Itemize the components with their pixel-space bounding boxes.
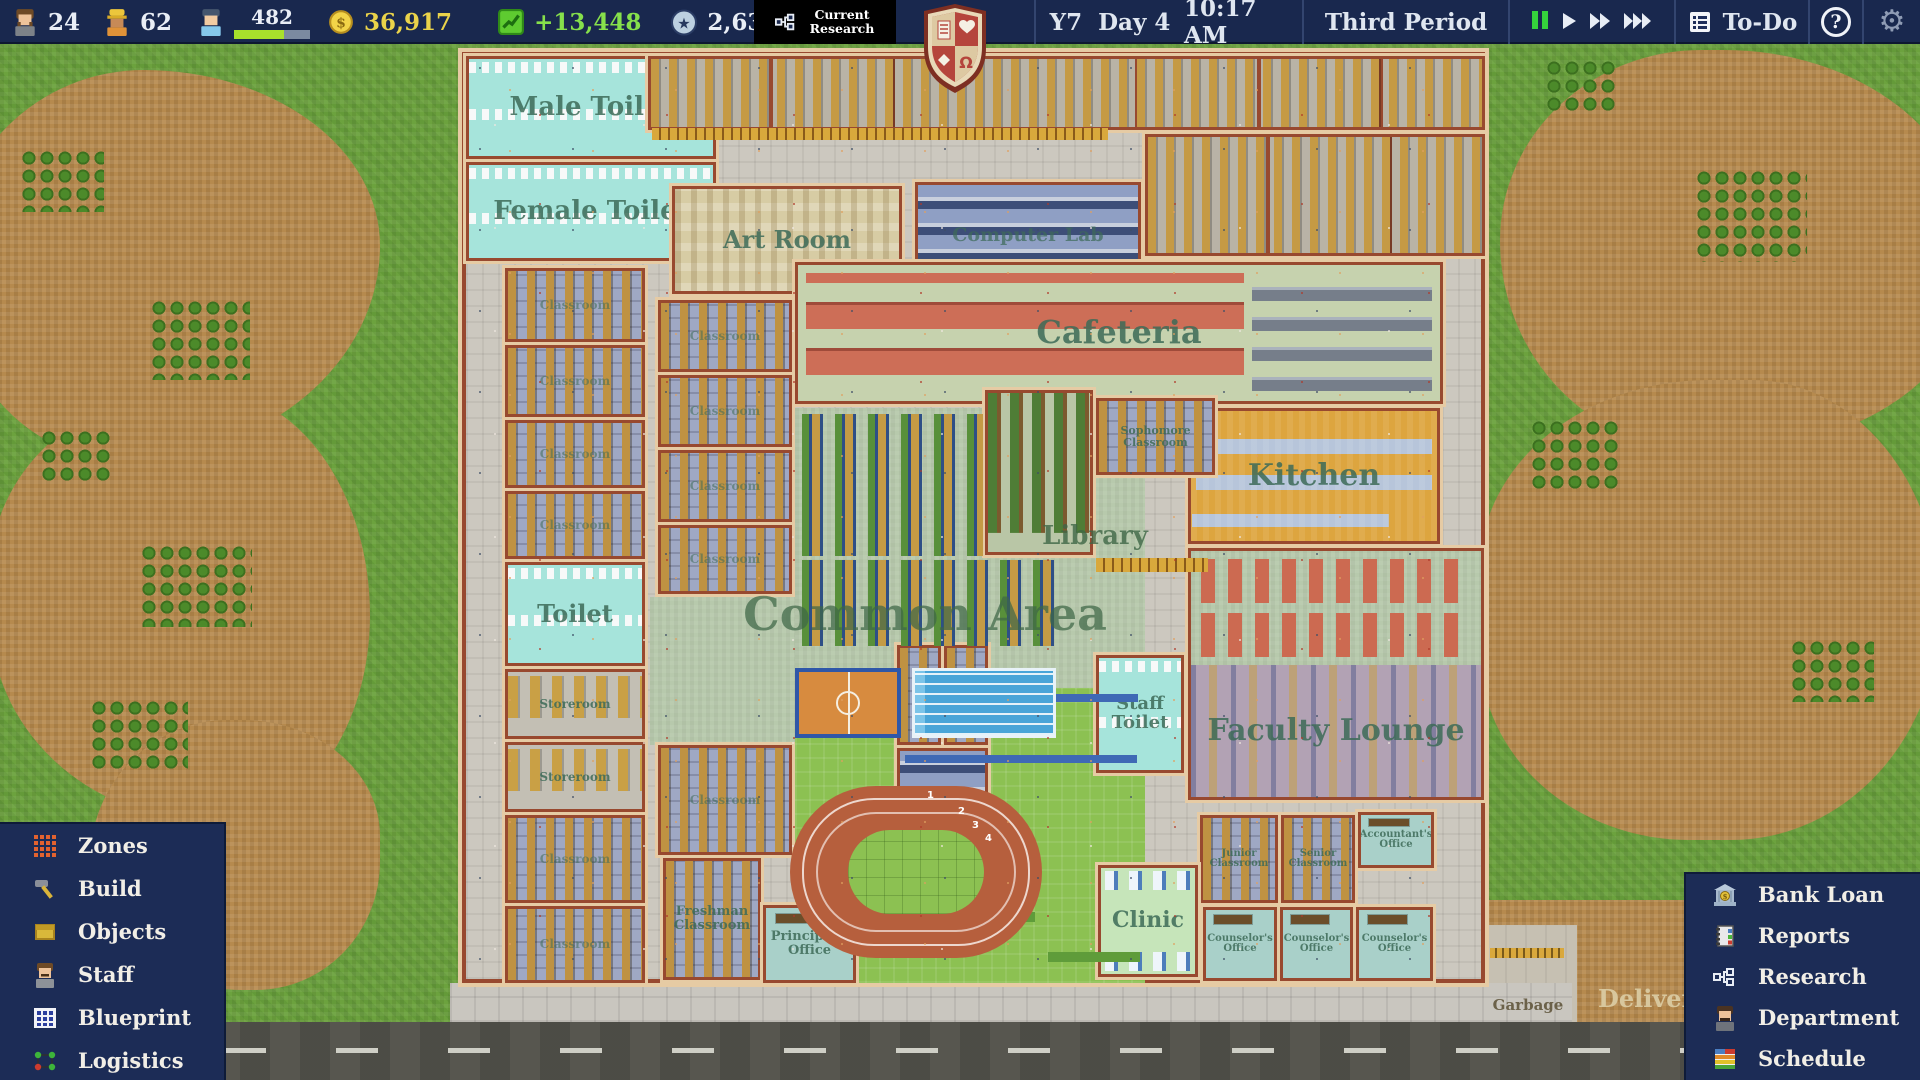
menu-item-label: Zones — [78, 833, 148, 858]
tree-cluster — [1790, 640, 1874, 702]
room-classroom[interactable]: Classroom — [658, 450, 792, 522]
room-label: Classroom — [508, 423, 642, 485]
room-label: Storeroom — [508, 745, 642, 809]
room-accountants-office[interactable]: Accountant's Office — [1358, 812, 1434, 868]
student-count-value: 482 — [251, 5, 293, 29]
profit-chart-icon — [498, 9, 524, 35]
menu-item-blueprint[interactable]: Blueprint — [0, 996, 224, 1039]
swimming-pool[interactable] — [912, 668, 1056, 738]
prestige-star-icon: ★ — [671, 9, 697, 35]
worker-count-value: 62 — [140, 9, 172, 36]
room-label: Toilet — [508, 565, 642, 663]
tree-cluster — [40, 430, 110, 482]
reports-notebook-icon — [1712, 923, 1738, 949]
worker-icon — [104, 9, 130, 35]
room-classroom-band[interactable] — [1145, 134, 1485, 256]
svg-text:$: $ — [336, 15, 346, 31]
money-value: 36,917 — [364, 9, 452, 36]
money-stat: $ 36,917 — [328, 9, 452, 36]
room-label: Classroom — [661, 528, 789, 591]
room-classroom[interactable]: Classroom — [505, 420, 645, 488]
room-label: Counselor's Office — [1283, 910, 1350, 978]
day-value: Day 4 — [1098, 9, 1170, 36]
room-label: Classroom — [508, 818, 642, 900]
time-value: 10:17 AM — [1184, 0, 1302, 49]
teacher-icon — [12, 9, 38, 35]
sofa-row[interactable] — [1201, 613, 1471, 657]
room-label: Sophomore Classroom — [1099, 401, 1212, 472]
help-button[interactable]: ? — [1808, 0, 1862, 44]
management-menu: $ Bank Loan Reports Research Department … — [1684, 872, 1920, 1080]
room-kitchen[interactable]: Kitchen — [1188, 408, 1440, 544]
menu-item-label: Bank Loan — [1758, 882, 1884, 907]
student-capacity-fill — [234, 30, 284, 39]
sidewalk — [450, 983, 1572, 1022]
lockers[interactable] — [652, 128, 1108, 140]
menu-item-zones[interactable]: Zones — [0, 824, 224, 867]
department-person-icon — [1712, 1005, 1738, 1031]
tree-cluster — [150, 300, 250, 380]
svg-text:★: ★ — [678, 14, 691, 32]
year-value: Y7 — [1050, 9, 1082, 36]
room-classroom[interactable]: Classroom — [658, 745, 792, 855]
menu-item-label: Logistics — [78, 1048, 184, 1073]
svg-text:$: $ — [1723, 892, 1728, 901]
room-sophomore-classroom[interactable]: Sophomore Classroom — [1096, 398, 1215, 475]
staff-person-icon — [32, 962, 58, 988]
date-display: Y7 Day 4 — [1034, 0, 1184, 44]
sofa-row[interactable] — [1201, 559, 1471, 603]
menu-item-label: Research — [1758, 964, 1867, 989]
room-label: Storeroom — [508, 672, 642, 736]
room-counselors-office[interactable]: Counselor's Office — [1280, 907, 1353, 981]
menu-item-bank-loan[interactable]: $ Bank Loan — [1686, 874, 1920, 915]
blueprint-icon — [32, 1005, 58, 1031]
room-label: Classroom — [508, 271, 642, 339]
room-counselors-office[interactable]: Counselor's Office — [1356, 907, 1433, 981]
serving-counter[interactable] — [1252, 275, 1432, 391]
todo-label: To-Do — [1723, 9, 1798, 36]
tree-cluster — [1530, 420, 1622, 490]
student-icon — [198, 9, 224, 35]
play-button[interactable] — [1561, 9, 1577, 36]
logistics-icon — [32, 1048, 58, 1074]
fast-forward-button[interactable] — [1589, 9, 1611, 36]
build-menu: Zones Build Objects Staff Blueprint Logi — [0, 822, 226, 1080]
schedule-table-icon — [1712, 1046, 1738, 1072]
tree-cluster — [140, 545, 252, 627]
room-label: Junior Classroom — [1203, 818, 1275, 900]
lane-number: 1 — [927, 790, 934, 801]
menu-item-label: Objects — [78, 919, 166, 944]
common-area-floor[interactable] — [650, 597, 795, 745]
room-label: Counselor's Office — [1359, 910, 1430, 978]
room-storeroom[interactable]: Storeroom — [505, 669, 645, 739]
worker-count: 62 — [104, 9, 172, 36]
lockers[interactable] — [1096, 558, 1208, 572]
room-freshman-classroom[interactable]: Freshman Classroom — [663, 858, 761, 980]
menu-item-label: Department — [1758, 1005, 1899, 1030]
room-classroom[interactable]: Classroom — [658, 300, 792, 372]
room-label: Classroom — [508, 348, 642, 414]
menu-item-label: Blueprint — [78, 1005, 191, 1030]
speed-controls — [1508, 0, 1674, 44]
room-label: Counselor's Office — [1206, 910, 1274, 978]
lane-number: 3 — [972, 820, 979, 831]
cafeteria-tables[interactable] — [806, 273, 1244, 375]
room-senior-classroom[interactable]: Senior Classroom — [1281, 815, 1355, 903]
menu-item-schedule[interactable]: Schedule — [1686, 1038, 1920, 1079]
room-label: Classroom — [661, 453, 789, 519]
bench-row[interactable] — [905, 755, 1137, 763]
running-track[interactable]: 1 2 3 4 — [790, 786, 1042, 958]
game-screen: Male Toilet Female Toilet Art Room Compu… — [0, 0, 1920, 1080]
lane-number: 2 — [958, 806, 965, 817]
period-display: Third Period — [1302, 0, 1508, 44]
menu-item-label: Build — [78, 876, 142, 901]
profit-value: +13,448 — [534, 9, 641, 36]
room-cafeteria[interactable]: Cafeteria — [795, 262, 1443, 404]
tree-cluster — [20, 150, 104, 212]
top-bar-right: Y7 Day 4 10:17 AM Third Period — [1034, 0, 1920, 44]
menu-item-objects[interactable]: Objects — [0, 910, 224, 953]
faculty-lounge-tables[interactable] — [1191, 665, 1481, 797]
picnic-tables[interactable] — [802, 560, 1062, 646]
menu-item-logistics[interactable]: Logistics — [0, 1039, 224, 1080]
tree-cluster — [1695, 170, 1807, 262]
settings-button[interactable]: ⚙ — [1862, 0, 1920, 44]
road — [0, 1022, 1920, 1080]
basketball-court[interactable] — [795, 668, 901, 738]
room-label: Classroom — [508, 909, 642, 980]
room-label: Kitchen — [1191, 411, 1437, 541]
room-label: Senior Classroom — [1284, 818, 1352, 900]
room-label: Freshman Classroom — [666, 861, 758, 977]
bank-icon: $ — [1712, 882, 1738, 908]
road-markings — [0, 1048, 1920, 1053]
objects-box-icon — [32, 919, 58, 945]
menu-item-build[interactable]: Build — [0, 867, 224, 910]
room-classroom[interactable]: Classroom — [505, 815, 645, 903]
track-infield — [848, 830, 984, 914]
tree-cluster — [1545, 60, 1615, 112]
hammer-icon — [32, 876, 58, 902]
todo-list-icon — [1687, 9, 1713, 35]
student-count: 482 — [198, 5, 310, 39]
room-classroom[interactable]: Classroom — [658, 375, 792, 447]
svg-text:Ω: Ω — [959, 53, 973, 72]
room-toilet[interactable]: Toilet — [505, 562, 645, 666]
picnic-tables[interactable] — [802, 414, 983, 556]
room-library[interactable] — [985, 390, 1093, 555]
gear-icon: ⚙ — [1879, 7, 1906, 37]
menu-item-label: Schedule — [1758, 1046, 1866, 1071]
stats-group: 24 62 482 $ 36,917 — [12, 0, 779, 44]
menu-item-label: Staff — [78, 962, 134, 987]
tree-cluster — [90, 700, 188, 770]
menu-item-research[interactable]: Research — [1686, 956, 1920, 997]
student-capacity-bar — [234, 30, 310, 39]
room-classroom[interactable]: Classroom — [658, 525, 792, 594]
pause-button[interactable] — [1531, 9, 1549, 36]
lane-number: 4 — [985, 833, 992, 844]
room-label: Classroom — [661, 748, 789, 852]
room-classroom[interactable]: Classroom — [505, 345, 645, 417]
school-crest: Ω — [919, 2, 991, 94]
menu-item-label: Reports — [1758, 923, 1850, 948]
room-label: Classroom — [661, 303, 789, 369]
teacher-count: 24 — [12, 9, 80, 36]
research-flowchart-icon — [1712, 964, 1738, 990]
room-classroom[interactable]: Classroom — [505, 268, 645, 342]
room-classroom[interactable]: Classroom — [505, 491, 645, 559]
room-faculty-lounge[interactable]: Faculty Lounge — [1188, 548, 1484, 800]
room-classroom-band[interactable] — [648, 56, 1485, 130]
room-counselors-office[interactable]: Counselor's Office — [1203, 907, 1277, 981]
room-label: Accountant's Office — [1361, 815, 1431, 865]
zones-icon — [32, 833, 58, 859]
menu-item-reports[interactable]: Reports — [1686, 915, 1920, 956]
todo-button[interactable]: To-Do — [1674, 0, 1808, 44]
hedge — [1048, 952, 1140, 962]
room-classroom[interactable]: Classroom — [505, 906, 645, 983]
menu-item-staff[interactable]: Staff — [0, 953, 224, 996]
time-display: 10:17 AM — [1184, 0, 1302, 44]
research-icon — [773, 9, 799, 35]
room-storeroom[interactable]: Storeroom — [505, 742, 645, 812]
room-junior-classroom[interactable]: Junior Classroom — [1200, 815, 1278, 903]
money-icon: $ — [328, 9, 354, 35]
current-research-label: Current Research — [807, 8, 877, 37]
fastest-forward-button[interactable] — [1623, 9, 1653, 36]
room-label: Classroom — [661, 378, 789, 444]
teacher-count-value: 24 — [48, 9, 80, 36]
period-value: Third Period — [1325, 9, 1487, 36]
room-label: Staff Toilet — [1099, 658, 1181, 770]
garbage-fence — [1490, 948, 1564, 958]
menu-item-department[interactable]: Department — [1686, 997, 1920, 1038]
profit-stat: +13,448 — [498, 9, 641, 36]
room-label: Classroom — [508, 494, 642, 556]
question-mark-icon: ? — [1821, 7, 1851, 37]
current-research-button[interactable]: Current Research — [754, 0, 896, 44]
